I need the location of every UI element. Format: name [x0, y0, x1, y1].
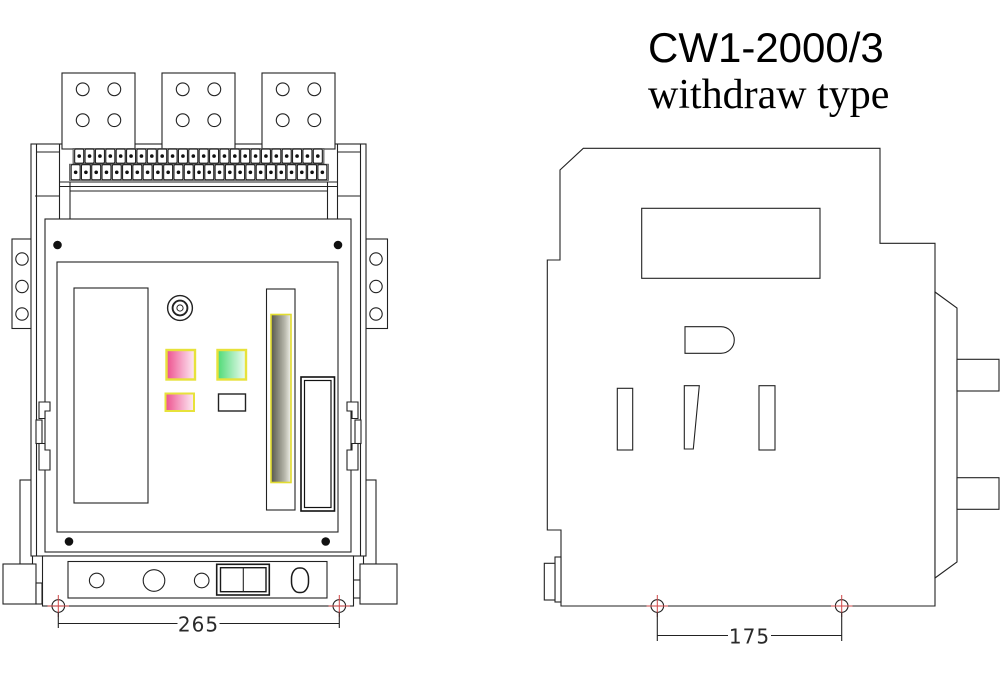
terminal-screw [146, 171, 150, 175]
screw-bottom-left [65, 537, 74, 546]
terminal-screw [321, 171, 325, 175]
side-foot-plate [555, 557, 561, 602]
handle-slot [271, 315, 291, 483]
terminal-screw [109, 154, 113, 158]
terminal-screw [140, 154, 144, 158]
terminal-screw [98, 154, 102, 158]
terminal-screw [238, 171, 242, 175]
side-view: 175 CW1-2000/3 withdraw type [544, 24, 999, 649]
screw-bottom-right [321, 537, 330, 546]
terminal-plate [935, 292, 957, 578]
pink-button-large [167, 350, 196, 380]
front-width-dimension-label: 265 [178, 613, 219, 637]
terminal-screw [105, 171, 109, 175]
terminal-screw [269, 171, 273, 175]
terminal-pad [62, 73, 135, 149]
terminal-screw [160, 154, 164, 158]
terminal-screw [264, 154, 268, 158]
terminal-screw [306, 154, 310, 158]
terminal-screw [88, 154, 92, 158]
side-width-dimension-label: 175 [729, 625, 770, 649]
terminal-strip [70, 149, 329, 181]
terminal-screw [129, 154, 133, 158]
screw-top-right [334, 241, 343, 250]
left-foot [3, 564, 36, 604]
nameplate [74, 288, 148, 503]
terminal-strip-row [70, 164, 329, 180]
terminal-screw [187, 171, 191, 175]
terminal-screw [156, 171, 160, 175]
terminal-strip-row [73, 149, 324, 164]
terminal-screw [212, 154, 216, 158]
terminal-screw [74, 171, 78, 175]
terminal-screw [181, 154, 185, 158]
technical-drawing: 265 175 [0, 0, 1000, 680]
terminal-screw [207, 171, 211, 175]
terminal-screw [290, 171, 294, 175]
terminal-screw [171, 154, 175, 158]
terminal-pad-body [62, 73, 135, 149]
terminal-pad-body [262, 73, 335, 149]
terminal-screw [197, 171, 201, 175]
terminal-screw [84, 171, 88, 175]
front-view: 265 [3, 73, 397, 637]
terminal-screw [228, 171, 232, 175]
terminal-screw [279, 171, 283, 175]
terminal-screw [177, 171, 181, 175]
terminal-screw [310, 171, 314, 175]
terminal-screw [300, 171, 304, 175]
terminal-screw [316, 154, 320, 158]
terminal-screw [254, 154, 258, 158]
pink-button-small [166, 394, 195, 412]
terminal-screw [94, 171, 98, 175]
terminal-screw [119, 154, 123, 158]
terminal-screw [166, 171, 170, 175]
terminal-screw [233, 154, 237, 158]
type-subtitle: withdraw type [648, 72, 889, 118]
terminal-screw [275, 154, 279, 158]
terminal-screw [218, 171, 222, 175]
terminal-screw [115, 171, 119, 175]
terminal-screw [77, 154, 81, 158]
terminal-pad-body [162, 73, 235, 149]
terminal-pad [162, 73, 235, 149]
mounting-bracket [366, 239, 388, 329]
side-terminal-upper [957, 359, 999, 391]
terminal-screw [136, 171, 140, 175]
terminal-screw [285, 154, 289, 158]
terminal-screw [223, 154, 227, 158]
terminal-screw [202, 154, 206, 158]
terminal-pads [62, 73, 335, 149]
label-window-inner [305, 381, 332, 508]
right-rail-pin [355, 420, 361, 444]
side-terminal-lower [957, 478, 999, 510]
terminal-screw [243, 154, 247, 158]
side-body-outline [547, 148, 935, 606]
terminal-screw [150, 154, 154, 158]
model-title: CW1-2000/3 [648, 24, 884, 71]
white-button [219, 394, 246, 411]
green-button [218, 350, 247, 380]
terminal-screw [192, 154, 196, 158]
side-foot-tab [544, 563, 555, 600]
left-foot-notch [36, 583, 42, 604]
terminal-screw [249, 171, 253, 175]
terminal-pad [262, 73, 335, 149]
terminal-screw [125, 171, 129, 175]
terminal-screw [295, 154, 299, 158]
left-rail-pin [36, 420, 42, 444]
right-foot [360, 564, 397, 604]
mounting-bracket [12, 239, 34, 329]
terminal-screw [259, 171, 263, 175]
screw-top-left [53, 241, 62, 250]
